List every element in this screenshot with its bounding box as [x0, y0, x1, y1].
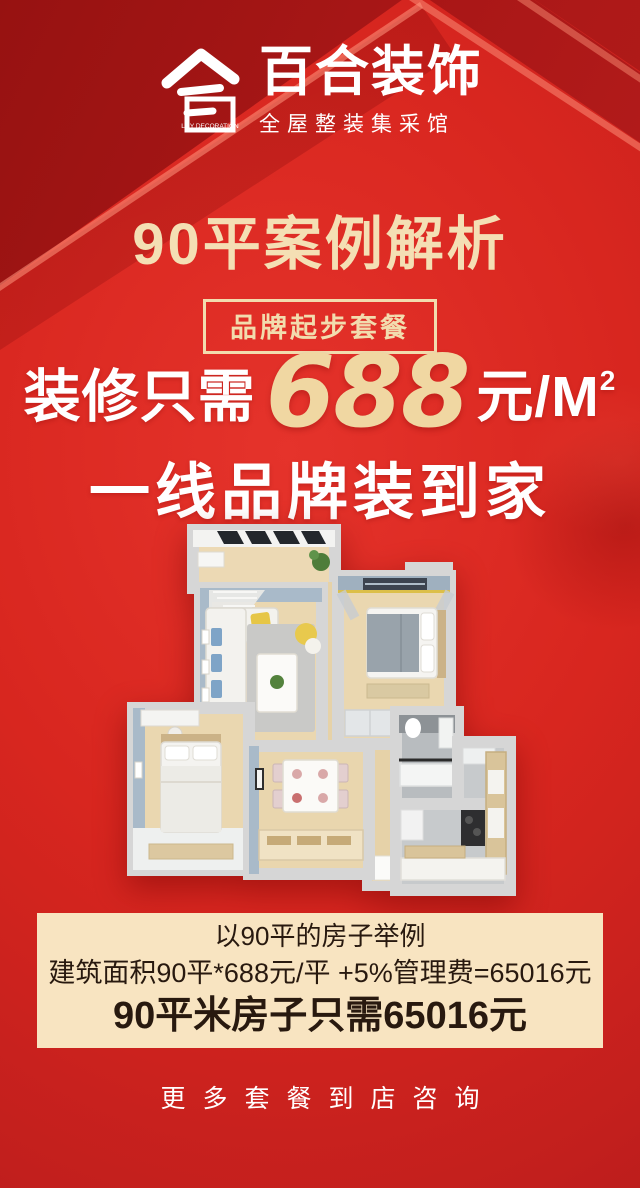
room-second-bedroom: [133, 708, 249, 870]
headline-prefix: 装修只需: [24, 351, 256, 433]
example-formula: 建筑面积90平*688元/平 +5%管理费=65016元: [48, 956, 591, 991]
footer-cta: 更多套餐到店咨询: [0, 1079, 640, 1115]
brand-name: 百合装饰: [259, 44, 483, 101]
room-dining: [249, 746, 369, 874]
page-title: 90平案例解析: [0, 197, 640, 281]
room-bathroom: [396, 712, 458, 804]
price-unit-superscript: 2: [600, 365, 617, 396]
price-unit: 元/M2: [476, 351, 616, 433]
headline-line1: 装修只需 688 元/M2: [0, 349, 640, 434]
brand-text-block: 百合装饰 全屋整装集采馆: [259, 44, 483, 138]
promo-poster: LILY DECORATION 百合装饰 全屋整装集采馆 90平案例解析 品牌起…: [0, 0, 640, 1188]
house-logo-icon: LILY DECORATION: [157, 47, 243, 135]
headline: 装修只需 688 元/M2 一线品牌装到家: [0, 349, 640, 531]
price-example-box: 以90平的房子举例 建筑面积90平*688元/平 +5%管理费=65016元 9…: [37, 913, 603, 1048]
floor-plan-image: [105, 512, 535, 904]
brand-logo: LILY DECORATION 百合装饰 全屋整装集采馆: [0, 44, 640, 138]
brand-tagline: 全屋整装集采馆: [259, 108, 455, 138]
price-value: 688: [266, 349, 469, 434]
room-balcony: [193, 530, 335, 588]
logo-label-text: LILY DECORATION: [181, 123, 239, 130]
example-total: 90平米房子只需65016元: [113, 993, 527, 1041]
example-title: 以90平的房子举例: [215, 920, 426, 954]
